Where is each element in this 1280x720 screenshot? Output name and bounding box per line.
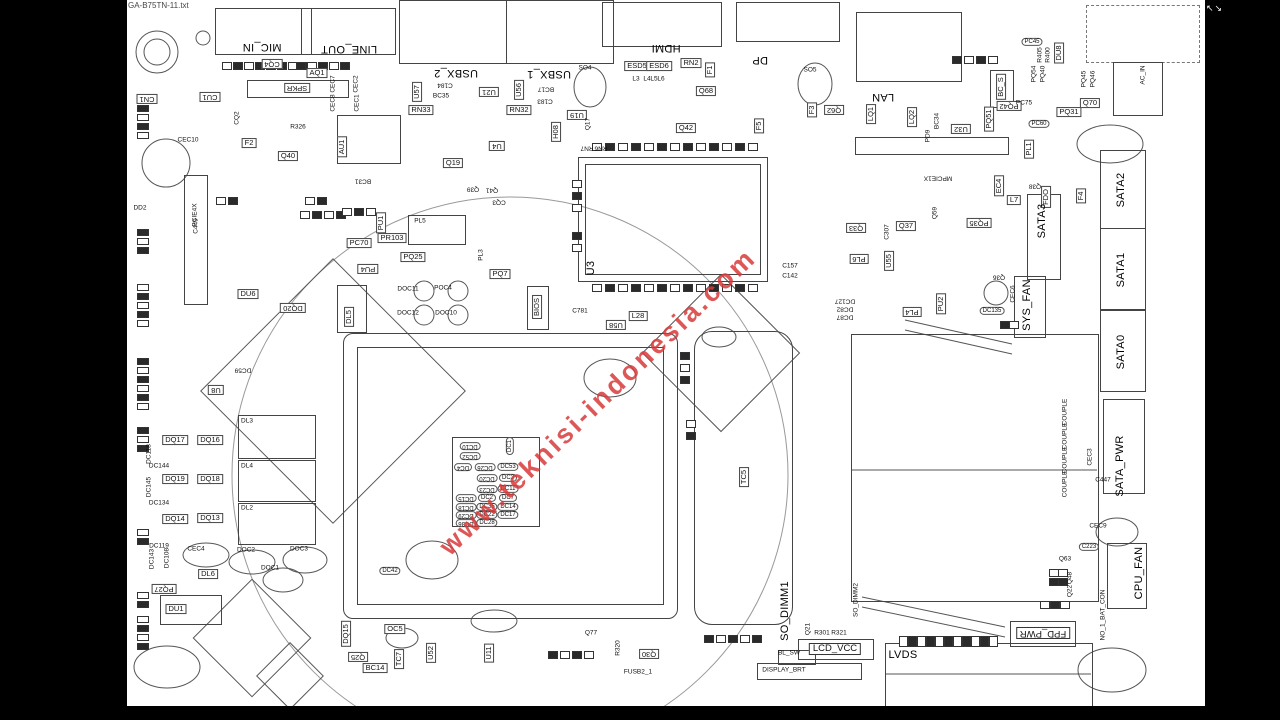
board-outline-rect xyxy=(506,0,614,64)
pin-pad xyxy=(989,636,998,647)
smd-component xyxy=(137,132,149,139)
component-label-pc75: PC75 xyxy=(1016,101,1032,108)
pin-pad xyxy=(944,636,953,647)
pin-pad xyxy=(962,636,971,647)
component-label-pq31: PQ31 xyxy=(1056,107,1081,117)
component-label-q48: Q48 xyxy=(1068,572,1075,584)
connector-label-u3: U3 xyxy=(586,261,598,276)
component-label-u21: U21 xyxy=(479,87,499,97)
component-label-q39: Q39 xyxy=(467,185,479,192)
component-label-pq51: PQ51 xyxy=(984,106,994,131)
component-label-ac_in: AC_IN xyxy=(1141,65,1148,84)
smd-component xyxy=(560,651,570,659)
component-label-c142: C142 xyxy=(782,274,798,281)
component-label-q19: Q19 xyxy=(443,158,463,168)
viewer-margin-right xyxy=(1205,0,1280,720)
component-label-q30: Q30 xyxy=(639,649,659,659)
component-label-u32: U32 xyxy=(951,124,971,134)
component-label-l28: L28 xyxy=(629,311,648,321)
pin-pad xyxy=(222,62,232,70)
component-label-pq54: PQ54 xyxy=(1032,66,1039,83)
component-label-rn7: RN7 xyxy=(580,144,593,151)
component-label-aq1: AQ1 xyxy=(306,68,327,78)
component-label-pl6: PL6 xyxy=(849,254,868,264)
pin-pad xyxy=(926,636,935,647)
component-label-display_brt: DISPLAY_BRT xyxy=(762,668,805,675)
connector-label-hdmi: HDMI xyxy=(651,41,680,53)
component-label-cec6: CEC6 xyxy=(1011,285,1018,302)
component-label-lq2: LQ2 xyxy=(907,107,917,127)
component-label-dc4: DC4 xyxy=(454,463,472,471)
component-label-dd2: DD2 xyxy=(133,206,146,213)
component-label-l7: L7 xyxy=(1007,195,1021,205)
smd-component xyxy=(680,376,690,384)
component-label-bios: BIOS xyxy=(532,295,542,319)
pin-pad xyxy=(935,636,944,647)
component-label-dq16: DQ16 xyxy=(197,435,223,445)
component-label-cec8: CEC8 xyxy=(331,94,338,111)
component-label-dc82: DC82 xyxy=(837,305,854,312)
component-label-dq14: DQ14 xyxy=(162,514,188,524)
pin-pad xyxy=(971,636,980,647)
component-label-so5: SO5 xyxy=(803,68,816,75)
component-label-dl6: DL6 xyxy=(198,569,218,579)
pin-pad xyxy=(899,636,908,647)
component-label-bc34: BC34 xyxy=(935,113,942,129)
board-hole-or-cap xyxy=(196,31,210,45)
smd-component xyxy=(680,364,690,372)
component-label-q40: Q40 xyxy=(278,151,298,161)
component-label-cec3: CEC3 xyxy=(1088,448,1095,465)
component-label-rn32: RN32 xyxy=(506,105,531,115)
component-label-doc11: DOC11 xyxy=(397,287,418,294)
component-label-q22: Q22 xyxy=(1068,585,1075,597)
smd-component xyxy=(548,651,558,659)
component-label-dc10: DC10 xyxy=(459,442,480,450)
component-label-so4: SO4 xyxy=(578,66,591,73)
board-outline-rect xyxy=(184,175,208,305)
pin-pad xyxy=(748,143,758,151)
component-label-c447: C447 xyxy=(1095,478,1111,485)
pin-pad xyxy=(683,143,693,151)
pin-pad xyxy=(735,143,745,151)
component-label-rn6: RN6 xyxy=(594,144,607,151)
component-label-l3: L3 xyxy=(632,77,639,84)
smd-component xyxy=(340,62,350,70)
component-label-bc14: BC14 xyxy=(363,663,388,673)
component-label-r405: R405 xyxy=(1038,47,1045,63)
component-label-q33: Q33 xyxy=(846,223,866,233)
component-label-q63: Q63 xyxy=(1059,557,1071,564)
connector-label-line_out: LINE_OUT xyxy=(321,42,377,54)
smd-component xyxy=(137,625,149,632)
smd-component xyxy=(976,56,986,64)
smd-component xyxy=(952,56,962,64)
component-label-q37: Q37 xyxy=(896,221,916,231)
component-label-doc3: DOC3 xyxy=(290,547,308,554)
component-label-dc1: DC1 xyxy=(506,437,514,455)
pin-pad xyxy=(657,284,667,292)
pin-pad xyxy=(748,284,758,292)
component-label-du6: DU6 xyxy=(237,289,258,299)
component-label-q25: Q25 xyxy=(348,652,368,662)
component-label-dc118: DC118 xyxy=(147,444,154,464)
smd-component xyxy=(1040,601,1050,609)
smd-component xyxy=(1060,601,1070,609)
component-label-pq46: PQ46 xyxy=(1091,71,1098,88)
smd-component xyxy=(216,197,226,205)
connector-label-sata2: SATA2 xyxy=(1116,173,1128,208)
component-label-dc26: DC26 xyxy=(474,463,495,471)
pin-pad xyxy=(670,284,680,292)
component-label-pc70: PC70 xyxy=(347,238,372,248)
component-label-spkr: SPKR xyxy=(284,83,310,93)
smd-component xyxy=(716,635,726,643)
component-label-bc17: BC17 xyxy=(538,85,554,92)
component-label-dc59: DC59 xyxy=(235,366,252,373)
component-label-no_1_bat_con: NO_1_BAT_CON xyxy=(1101,590,1108,641)
component-label-r321: R321 xyxy=(831,631,847,638)
component-label-pl5: PL5 xyxy=(414,219,426,226)
component-label-dq19: DQ19 xyxy=(162,474,188,484)
component-label-lq1: LQ1 xyxy=(866,104,876,124)
component-label-couple: COUPLE xyxy=(1063,471,1070,498)
smd-component xyxy=(296,62,306,70)
component-label-pu4: PU4 xyxy=(358,264,379,274)
component-label-cec9: CEC9 xyxy=(1089,524,1106,531)
smd-component xyxy=(137,114,149,121)
pin-pad xyxy=(670,143,680,151)
smd-component xyxy=(137,284,149,291)
pin-pad xyxy=(618,143,628,151)
component-label-pq40: PQ40 xyxy=(1041,66,1048,83)
smd-component xyxy=(572,192,582,200)
component-label-dc52: DC52 xyxy=(459,452,480,460)
connector-label-mic_in: MIC_IN xyxy=(242,40,281,52)
component-label-c781: C781 xyxy=(572,309,588,316)
smd-component xyxy=(137,311,149,318)
component-label-dl5: DL5 xyxy=(344,307,354,327)
smd-component xyxy=(584,651,594,659)
component-label-tc5: TC5 xyxy=(739,467,749,487)
component-label-pl1: PL1 xyxy=(1024,139,1034,158)
component-label-f5: F5 xyxy=(754,119,764,134)
component-label-bc31: BC31 xyxy=(355,177,371,184)
connector-label-lvds: LVDS xyxy=(888,650,917,662)
component-label-dc134: DC134 xyxy=(149,501,169,508)
component-label-dq13: DQ13 xyxy=(197,513,223,523)
smd-component xyxy=(342,208,352,216)
component-label-fusb2_1: FUSB2_1 xyxy=(624,670,652,677)
component-label-q17: Q17 xyxy=(586,118,593,130)
board-hole-or-cap xyxy=(144,39,170,65)
component-label-cn1: CN1 xyxy=(136,94,157,104)
connector-label-fpd_pwr: FPD_PWR xyxy=(1016,627,1070,639)
component-label-tc7: TC7 xyxy=(394,649,404,669)
component-label-bc35: BC35 xyxy=(433,94,449,101)
smd-component xyxy=(137,247,149,254)
component-label-dl2: DL2 xyxy=(241,506,253,513)
smd-component xyxy=(137,367,149,374)
smd-component xyxy=(988,56,998,64)
component-label-q62: Q62 xyxy=(824,105,844,115)
smd-component xyxy=(137,634,149,641)
smd-component xyxy=(704,635,714,643)
pin-pad xyxy=(618,284,628,292)
component-label-couple: COUPLE xyxy=(1063,447,1070,474)
component-label-pl3: PL3 xyxy=(479,249,486,261)
component-label-q77: Q77 xyxy=(585,631,597,638)
connector-label-dp: DP xyxy=(752,53,768,65)
component-label-q41: Q41 xyxy=(486,186,498,193)
component-label-du8: DU8 xyxy=(1054,42,1064,63)
connector-label-usbx_2: USBX_2 xyxy=(434,66,478,78)
board-hole-or-cap xyxy=(574,67,606,107)
component-label-couple: COUPLE xyxy=(1063,399,1070,426)
viewer-margin-bottom xyxy=(0,706,1280,720)
pin-pad xyxy=(631,143,641,151)
smd-component xyxy=(312,211,322,219)
smd-component xyxy=(1009,321,1019,329)
connector-label-sata1: SATA1 xyxy=(1116,253,1128,288)
component-label-dc144: DC144 xyxy=(149,464,169,471)
pin-pad xyxy=(953,636,962,647)
component-label-r320: R320 xyxy=(616,640,623,656)
pin-pad xyxy=(908,636,917,647)
smd-component xyxy=(740,635,750,643)
component-label-cu1: CU1 xyxy=(199,92,220,102)
component-label-c183: C183 xyxy=(537,97,553,104)
component-label-du1: DU1 xyxy=(165,604,186,614)
component-label-dc108: DC108 xyxy=(165,548,172,568)
component-label-dl4: DL4 xyxy=(241,464,253,471)
smd-component xyxy=(572,651,582,659)
component-label-r301: R301 xyxy=(814,631,830,638)
smd-component xyxy=(572,232,582,240)
component-label-u55: U55 xyxy=(884,251,894,271)
component-label-q36: Q36 xyxy=(993,273,1005,280)
component-label-dc135: DC135 xyxy=(980,307,1005,315)
component-label-c157: C157 xyxy=(782,264,798,271)
smd-component xyxy=(137,293,149,300)
component-label-pq25: PQ25 xyxy=(400,252,425,262)
document-title: GA-B75TN-11.txt xyxy=(128,1,189,10)
smd-component xyxy=(137,105,149,112)
smd-component xyxy=(137,427,149,434)
component-label-cec4: CEC4 xyxy=(187,547,204,554)
component-label-cec7: CEC7 xyxy=(331,75,338,92)
component-label-dc42: DC42 xyxy=(379,567,400,575)
smd-component xyxy=(137,238,149,245)
smd-component xyxy=(137,529,149,536)
connector-label-sys_fan: SYS_FAN xyxy=(1022,279,1034,331)
component-label-bc_s: BC_S xyxy=(996,74,1006,100)
component-label-q42: Q42 xyxy=(676,123,696,133)
component-label-dc143: DC143 xyxy=(150,549,157,569)
component-label-so_dimm2: SO_DIMM2 xyxy=(854,583,861,617)
pin-pad xyxy=(917,636,926,647)
pin-pad xyxy=(592,284,602,292)
component-label-r400: R400 xyxy=(1046,47,1053,63)
smd-component xyxy=(137,358,149,365)
smd-component xyxy=(137,616,149,623)
component-label-poc4: POC4 xyxy=(434,286,452,293)
board-hole-or-cap xyxy=(142,139,190,187)
component-label-pq35: PQ35 xyxy=(966,218,991,228)
component-label-oc5: OC5 xyxy=(384,624,405,634)
component-label-u57: U57 xyxy=(412,82,422,102)
smd-component xyxy=(137,394,149,401)
connector-label-cpu_fan: CPU_FAN xyxy=(1134,547,1146,600)
smd-component xyxy=(137,643,149,650)
connector-label-usbx_1: USBX_1 xyxy=(527,67,571,79)
component-label-dq17: DQ17 xyxy=(162,435,188,445)
smd-component xyxy=(366,208,376,216)
component-label-cec1: CEC1 xyxy=(355,94,362,111)
component-label-pc60: PC60 xyxy=(1028,120,1049,128)
component-label-dc127: DC127 xyxy=(835,297,855,304)
smd-component xyxy=(137,376,149,383)
component-label-rn2: RN2 xyxy=(680,58,701,68)
component-label-q59: Q59 xyxy=(933,207,940,219)
component-label-au1: AU1 xyxy=(337,137,347,158)
component-label-mpcie1x: MPCIE1X xyxy=(924,174,953,181)
connector-label-so_dimm1: SO_DIMM1 xyxy=(780,581,792,641)
component-label-pc45: PC45 xyxy=(1021,38,1042,46)
component-label-doc12: DOC12 xyxy=(397,311,419,318)
smd-component xyxy=(572,244,582,252)
smd-component xyxy=(686,432,696,440)
pin-pad xyxy=(631,284,641,292)
smd-component xyxy=(137,403,149,410)
connector-label-sata_pwr: SATA_PWR xyxy=(1115,435,1127,496)
component-label-cec10: CEC10 xyxy=(178,138,199,145)
smd-component xyxy=(324,211,334,219)
component-label-h08: H08 xyxy=(551,122,561,142)
component-label-bl_sw: BL_SW xyxy=(778,651,800,658)
resize-arrows-icon[interactable]: ↖↘ xyxy=(1206,3,1223,14)
pin-pad xyxy=(605,284,615,292)
board-outline-rect xyxy=(1086,5,1200,63)
component-label-pl4: PL4 xyxy=(902,307,921,317)
board-hole-or-cap xyxy=(984,281,1008,305)
smd-component xyxy=(317,197,327,205)
smd-component xyxy=(137,538,149,545)
component-label-q21: Q21 xyxy=(806,623,813,635)
smd-component xyxy=(752,635,762,643)
pin-pad xyxy=(244,62,254,70)
component-label-dl3: DL3 xyxy=(241,419,253,426)
component-label-u58: U58 xyxy=(606,320,626,330)
component-label-u11: U11 xyxy=(484,643,494,662)
smd-component xyxy=(137,601,149,608)
component-label-pr103: PR103 xyxy=(378,233,407,243)
component-label-esd6: ESD6 xyxy=(646,61,672,71)
smd-component xyxy=(137,592,149,599)
component-label-f2: F2 xyxy=(242,138,257,148)
smd-component xyxy=(572,180,582,188)
board-hole-or-cap xyxy=(134,646,200,688)
pin-pad xyxy=(696,143,706,151)
connector-label-sata3: SATA3 xyxy=(1037,204,1049,239)
component-label-dc87: DC87 xyxy=(837,313,854,320)
board-outline-rect xyxy=(856,12,962,82)
component-label-l6: L6 xyxy=(657,77,664,84)
component-label-pcie4x: PCIE4X xyxy=(193,203,200,226)
component-label-u56: U56 xyxy=(514,80,524,100)
component-label-u52: U52 xyxy=(426,643,436,663)
smd-component xyxy=(305,197,315,205)
component-label-ec4: EC4 xyxy=(994,176,1004,197)
component-label-couple: COUPLE xyxy=(1063,423,1070,450)
smd-component xyxy=(137,385,149,392)
component-label-dq15: DQ15 xyxy=(341,621,351,647)
smd-component xyxy=(228,197,238,205)
component-label-u4: U4 xyxy=(489,141,505,151)
component-label-pu2: PU2 xyxy=(936,294,946,315)
board-outline-rect xyxy=(399,0,507,64)
pin-pad xyxy=(644,284,654,292)
component-label-pu1: PU1 xyxy=(376,213,386,234)
component-label-u8: U8 xyxy=(208,385,224,395)
component-label-c307: C307 xyxy=(885,224,892,240)
board-hole-or-cap xyxy=(136,31,178,73)
smd-component xyxy=(1050,601,1060,609)
component-label-cec2: CEC2 xyxy=(354,75,361,92)
component-label-q38: Q38 xyxy=(1029,182,1041,189)
component-label-doc2: DOC2 xyxy=(237,548,255,555)
component-label-q70: Q70 xyxy=(1080,98,1100,108)
component-label-cq4: CQ4 xyxy=(261,59,282,69)
component-label-f4: F4 xyxy=(1076,189,1086,204)
component-label-rn33: RN33 xyxy=(408,105,433,115)
component-label-dc145: DC145 xyxy=(147,477,154,497)
board-outline-rect xyxy=(1113,62,1163,116)
smd-component xyxy=(137,123,149,130)
smd-component xyxy=(137,229,149,236)
component-label-r326: R326 xyxy=(290,125,306,132)
pin-pad xyxy=(709,143,719,151)
smd-component xyxy=(728,635,738,643)
connector-label-sata0: SATA0 xyxy=(1116,335,1128,370)
pin-pad xyxy=(657,143,667,151)
component-label-pd9: PD9 xyxy=(926,130,933,143)
smd-component xyxy=(300,211,310,219)
connector-label-lcd_vcc: LCD_VCC xyxy=(809,643,861,655)
pin-pad xyxy=(644,143,654,151)
component-label-c223: C223 xyxy=(1079,543,1099,551)
smd-component xyxy=(329,62,339,70)
component-label-doc10: DOC10 xyxy=(435,311,457,318)
component-label-pq45: PQ45 xyxy=(1082,71,1089,88)
component-label-q68: Q68 xyxy=(696,86,716,96)
component-label-dq20: DQ20 xyxy=(280,303,306,313)
smd-component xyxy=(686,420,696,428)
component-label-f1: F1 xyxy=(705,63,715,78)
pin-pad xyxy=(722,143,732,151)
smd-component xyxy=(137,320,149,327)
component-label-cq3: CQ3 xyxy=(492,198,505,205)
component-label-cq2: CQ2 xyxy=(235,111,242,124)
component-label-dq18: DQ18 xyxy=(197,474,223,484)
component-label-c184: C184 xyxy=(437,81,453,88)
smd-component xyxy=(680,352,690,360)
smd-component xyxy=(354,208,364,216)
component-label-f3: F3 xyxy=(807,103,817,118)
pin-pad xyxy=(980,636,989,647)
component-label-pq7: PQ7 xyxy=(489,269,510,279)
smd-component xyxy=(137,436,149,443)
